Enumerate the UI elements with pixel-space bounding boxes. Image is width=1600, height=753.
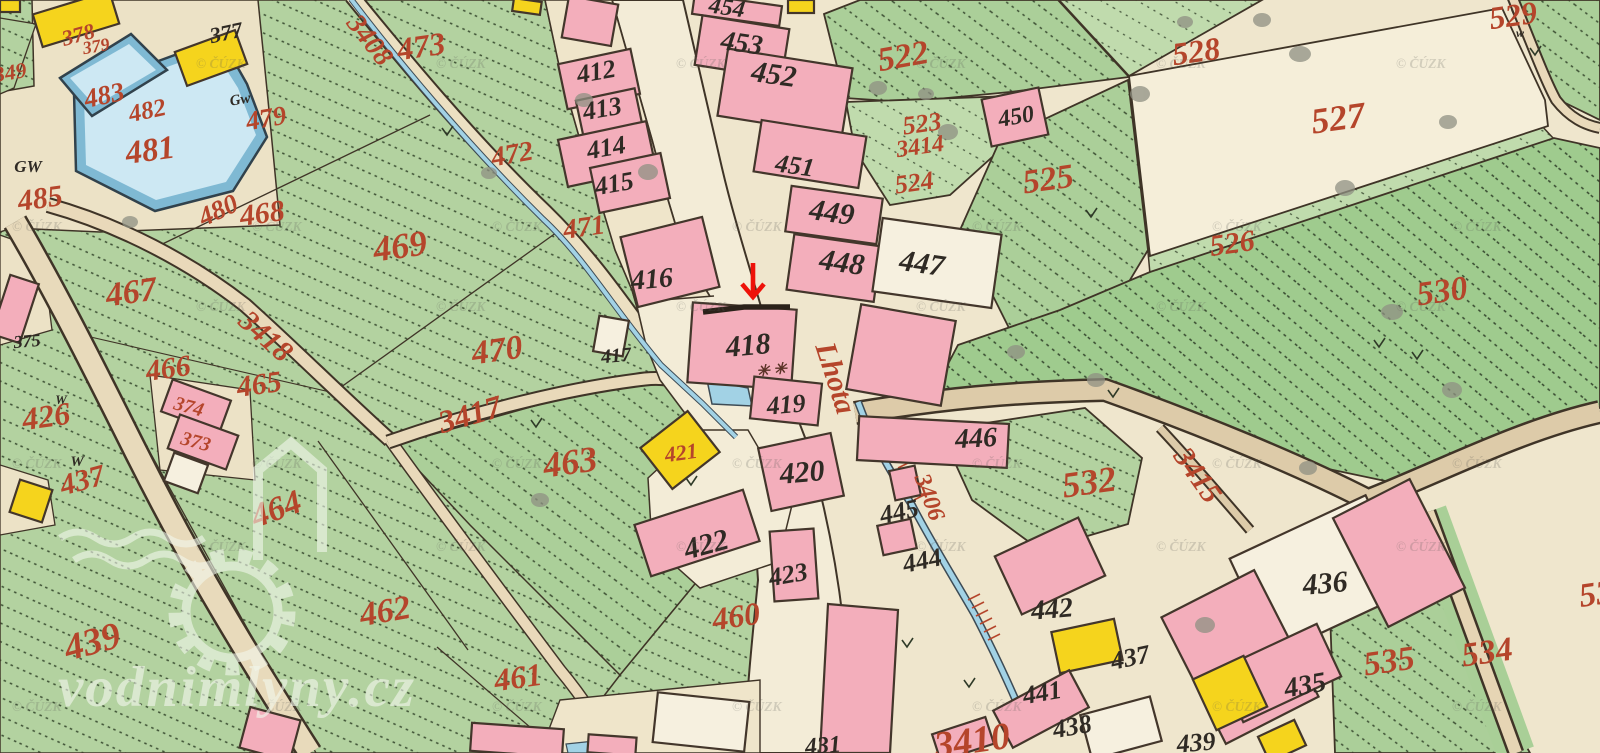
svg-text:416: 416 xyxy=(629,262,675,297)
svg-text:GW: GW xyxy=(14,157,43,176)
svg-text:442: 442 xyxy=(1029,592,1075,627)
svg-text:© ČÚZK: © ČÚZK xyxy=(1212,699,1262,714)
svg-text:✳: ✳ xyxy=(756,363,771,380)
svg-text:461: 461 xyxy=(491,656,545,698)
svg-text:446: 446 xyxy=(953,422,998,455)
svg-text:467: 467 xyxy=(102,270,161,314)
svg-text:439: 439 xyxy=(1174,726,1216,753)
svg-text:vodnimlyny.cz: vodnimlyny.cz xyxy=(58,656,416,719)
svg-text:© ČÚZK: © ČÚZK xyxy=(436,539,486,554)
svg-text:463: 463 xyxy=(539,438,599,485)
svg-text:481: 481 xyxy=(122,129,177,172)
svg-text:419: 419 xyxy=(764,388,806,420)
svg-text:© ČÚZK: © ČÚZK xyxy=(492,219,542,234)
svg-text:© ČÚZK: © ČÚZK xyxy=(1212,456,1262,471)
svg-text:470: 470 xyxy=(468,329,525,373)
svg-text:© ČÚZK: © ČÚZK xyxy=(916,56,966,71)
svg-text:© ČÚZK: © ČÚZK xyxy=(1452,456,1502,471)
svg-text:W: W xyxy=(70,454,85,470)
svg-text:485: 485 xyxy=(15,179,65,218)
svg-text:© ČÚZK: © ČÚZK xyxy=(436,299,486,314)
svg-text:© ČÚZK: © ČÚZK xyxy=(676,539,726,554)
svg-text:© ČÚZK: © ČÚZK xyxy=(676,299,726,314)
svg-text:418: 418 xyxy=(723,327,772,364)
svg-text:460: 460 xyxy=(709,595,763,637)
svg-text:527: 527 xyxy=(1308,94,1369,141)
svg-text:© ČÚZK: © ČÚZK xyxy=(916,299,966,314)
svg-text:375: 375 xyxy=(12,330,42,352)
svg-text:© ČÚZK: © ČÚZK xyxy=(972,219,1022,234)
svg-text:© ČÚZK: © ČÚZK xyxy=(916,539,966,554)
svg-text:466: 466 xyxy=(143,349,193,388)
svg-text:© ČÚZK: © ČÚZK xyxy=(252,219,302,234)
svg-text:© ČÚZK: © ČÚZK xyxy=(1452,699,1502,714)
svg-text:© ČÚZK: © ČÚZK xyxy=(1156,299,1206,314)
svg-text:w: w xyxy=(1516,26,1525,40)
svg-text:© ČÚZK: © ČÚZK xyxy=(1396,299,1446,314)
svg-text:447: 447 xyxy=(896,244,947,283)
svg-text:421: 421 xyxy=(662,438,699,467)
svg-text:451: 451 xyxy=(773,148,817,182)
svg-text:436: 436 xyxy=(1300,565,1349,602)
svg-text:© ČÚZK: © ČÚZK xyxy=(1396,56,1446,71)
svg-text:© ČÚZK: © ČÚZK xyxy=(1212,219,1262,234)
svg-text:534: 534 xyxy=(1459,631,1515,675)
svg-text:449: 449 xyxy=(806,193,856,232)
svg-text:53: 53 xyxy=(1577,574,1600,615)
svg-text:469: 469 xyxy=(369,222,429,269)
svg-text:© ČÚZK: © ČÚZK xyxy=(12,219,62,234)
svg-text:© ČÚZK: © ČÚZK xyxy=(492,456,542,471)
svg-text:W: W xyxy=(55,392,68,407)
svg-text:525: 525 xyxy=(1020,158,1076,202)
svg-text:524: 524 xyxy=(893,165,936,199)
svg-text:© ČÚZK: © ČÚZK xyxy=(972,456,1022,471)
svg-text:© ČÚZK: © ČÚZK xyxy=(732,219,782,234)
svg-text:420: 420 xyxy=(777,454,826,491)
svg-text:✳: ✳ xyxy=(773,361,788,378)
svg-text:© ČÚZK: © ČÚZK xyxy=(1396,539,1446,554)
svg-text:© ČÚZK: © ČÚZK xyxy=(1156,539,1206,554)
svg-text:© ČÚZK: © ČÚZK xyxy=(492,699,542,714)
svg-text:452: 452 xyxy=(748,55,798,94)
svg-text:431: 431 xyxy=(803,731,842,753)
svg-text:© ČÚZK: © ČÚZK xyxy=(1452,219,1502,234)
svg-text:© ČÚZK: © ČÚZK xyxy=(12,456,62,471)
svg-text:© ČÚZK: © ČÚZK xyxy=(1156,56,1206,71)
svg-text:535: 535 xyxy=(1361,640,1417,684)
svg-text:© ČÚZK: © ČÚZK xyxy=(196,299,246,314)
svg-text:532: 532 xyxy=(1059,458,1118,505)
svg-text:465: 465 xyxy=(234,365,284,404)
svg-text:© ČÚZK: © ČÚZK xyxy=(196,56,246,71)
svg-text:© ČÚZK: © ČÚZK xyxy=(732,699,782,714)
svg-text:© ČÚZK: © ČÚZK xyxy=(676,56,726,71)
svg-text:417: 417 xyxy=(599,344,633,369)
svg-text:448: 448 xyxy=(816,243,866,282)
svg-text:© ČÚZK: © ČÚZK xyxy=(436,56,486,71)
svg-text:© ČÚZK: © ČÚZK xyxy=(972,699,1022,714)
svg-text:471: 471 xyxy=(560,209,607,246)
svg-text:© ČÚZK: © ČÚZK xyxy=(732,456,782,471)
svg-text:© ČÚZK: © ČÚZK xyxy=(12,699,62,714)
